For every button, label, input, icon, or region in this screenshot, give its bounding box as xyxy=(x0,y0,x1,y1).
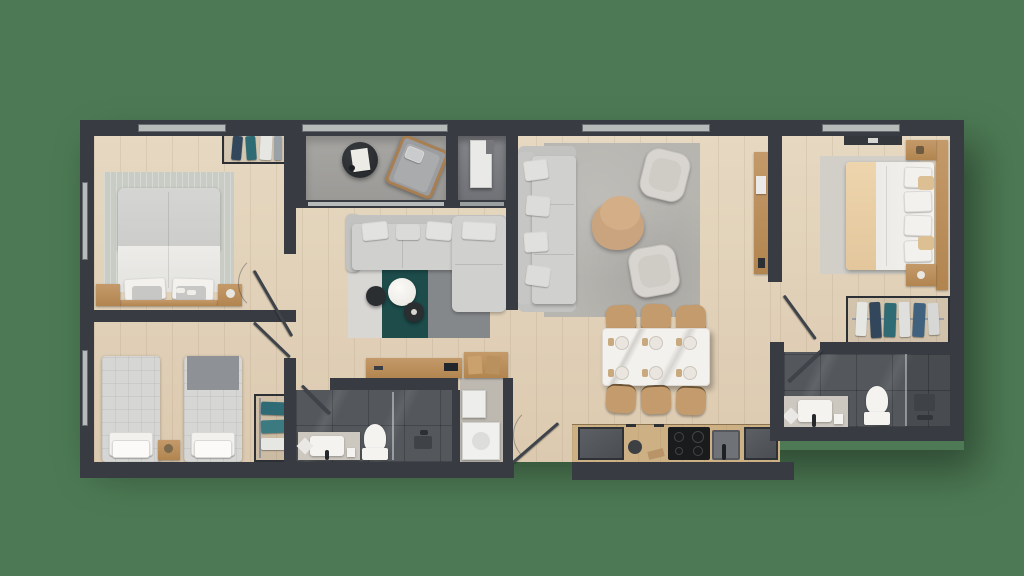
garment xyxy=(883,303,896,337)
wall-master-partition xyxy=(768,120,782,282)
sofa-pillow xyxy=(523,158,550,181)
accent-pillow xyxy=(918,176,934,190)
wall-right xyxy=(950,120,964,441)
wall-laundry-right xyxy=(503,378,513,462)
dryer xyxy=(462,422,500,460)
armchair-seat xyxy=(647,156,684,194)
bedroom-2-bed-left xyxy=(102,356,160,462)
dining-chair xyxy=(676,385,707,415)
washer xyxy=(462,390,486,418)
plate xyxy=(615,366,629,380)
armchair-bottom xyxy=(626,242,682,300)
balcony-sliding-glass xyxy=(308,202,444,206)
shower-fixture xyxy=(414,436,432,449)
garment xyxy=(898,302,910,337)
garment xyxy=(855,302,868,337)
cup xyxy=(676,338,682,346)
utility-glass xyxy=(460,202,504,206)
seam xyxy=(168,192,169,288)
burner xyxy=(693,446,703,456)
sofa-pillow xyxy=(525,264,552,287)
door-arc xyxy=(238,254,296,312)
throw-blanket xyxy=(187,356,239,390)
garment xyxy=(259,135,272,161)
master-media-unit xyxy=(844,136,902,145)
plant xyxy=(164,444,173,453)
fridge xyxy=(578,427,624,460)
window-master xyxy=(822,124,900,132)
shower-glass xyxy=(905,354,907,426)
bedroom-1-nightstand-left xyxy=(96,284,120,306)
wall-bottom-left xyxy=(80,462,514,478)
window-left-bedroom-2 xyxy=(82,350,88,426)
chaise-pillow xyxy=(462,221,497,241)
burner xyxy=(674,432,684,442)
organic-coffee-table-top xyxy=(600,196,640,230)
plate xyxy=(649,336,663,350)
slippers xyxy=(187,290,196,295)
master-toilet-bowl xyxy=(866,386,888,414)
soap-tray xyxy=(834,414,843,424)
garment xyxy=(245,136,257,161)
paper-bag xyxy=(485,355,501,374)
wall-master-suite-left xyxy=(770,342,784,441)
paper-bag xyxy=(467,356,482,375)
pillow xyxy=(112,440,150,458)
master-toilet-tank xyxy=(864,412,890,425)
decor xyxy=(916,146,924,154)
floor-plan-canvas xyxy=(0,0,1024,576)
wall-master-bath-top xyxy=(820,342,950,354)
remote xyxy=(374,366,383,370)
console-decor xyxy=(758,258,765,268)
decor xyxy=(917,271,925,279)
seam xyxy=(534,254,574,255)
shower-head xyxy=(420,430,428,435)
bathroom-1-faucet xyxy=(325,450,329,460)
pillow xyxy=(904,191,933,213)
cooktop xyxy=(668,427,710,460)
slippers xyxy=(176,288,185,293)
wall-bottom-kitchen xyxy=(572,462,794,480)
cabinet-handle xyxy=(654,424,664,427)
garment xyxy=(231,136,243,161)
wall-utility-left xyxy=(446,120,458,206)
cabinet-handle xyxy=(626,424,636,427)
plate xyxy=(615,336,629,350)
ac-unit-step xyxy=(486,140,494,154)
shower-fixture xyxy=(914,394,935,411)
tan-blanket xyxy=(846,162,876,270)
armchair-seat xyxy=(636,252,672,289)
plate xyxy=(683,336,697,350)
cup xyxy=(349,165,355,171)
master-faucet xyxy=(812,414,816,427)
cup xyxy=(608,369,614,377)
waste-bin xyxy=(628,440,642,454)
shower-handles xyxy=(917,415,933,420)
garment xyxy=(869,302,882,339)
side-table-dark xyxy=(404,302,424,322)
pillow xyxy=(904,215,933,237)
accent-pillow xyxy=(132,286,162,301)
window-lounge xyxy=(582,124,710,132)
window-left-bedroom-1 xyxy=(82,182,88,260)
window-bedroom-1 xyxy=(138,124,226,132)
dining-table xyxy=(602,328,710,386)
headboard xyxy=(120,300,218,306)
seam xyxy=(455,264,503,265)
burner xyxy=(692,431,704,443)
side-table-dark xyxy=(366,286,386,306)
window-balcony xyxy=(302,124,448,132)
duvet xyxy=(118,188,220,250)
seam xyxy=(886,166,887,266)
cup xyxy=(676,369,682,377)
device xyxy=(868,138,878,143)
garment xyxy=(274,136,282,160)
dining-chair xyxy=(605,383,636,414)
cup xyxy=(608,338,614,346)
wall-core-vertical xyxy=(506,120,518,310)
plate xyxy=(683,366,697,380)
dryer-door xyxy=(472,432,490,450)
soap-tray xyxy=(347,448,355,457)
sofa-pillow xyxy=(525,195,551,217)
wall-bathroom-laundry xyxy=(452,390,460,462)
burner xyxy=(675,447,683,455)
accent-pillow xyxy=(918,236,934,250)
sofa-pillow xyxy=(523,231,548,253)
kitchen-faucet xyxy=(722,444,726,460)
wall-bedrooms-right-lower xyxy=(284,358,296,462)
tv-console xyxy=(366,358,462,378)
wall-bottom-right xyxy=(770,427,964,441)
kitchen-sink xyxy=(712,430,740,460)
dining-chair xyxy=(641,384,672,414)
pillow xyxy=(194,440,232,458)
media-device xyxy=(444,363,458,371)
wall-console xyxy=(754,152,769,274)
toilet-tank xyxy=(362,448,388,460)
sofa-pillow xyxy=(361,221,389,242)
plate xyxy=(649,366,663,380)
sofa-pillow xyxy=(396,224,420,240)
wall-bathroom-1-top xyxy=(330,378,458,390)
laundry-shelf xyxy=(464,352,508,378)
console-device xyxy=(756,176,766,194)
sofa-pillow xyxy=(425,221,452,241)
garment xyxy=(912,303,926,338)
cup xyxy=(642,369,648,377)
bedroom-1-bed xyxy=(118,188,220,306)
plant xyxy=(226,289,235,298)
cup xyxy=(642,338,648,346)
wall-bedrooms-right-upper xyxy=(284,136,296,254)
shower-glass xyxy=(392,392,394,460)
garment xyxy=(927,303,940,336)
closet-frame xyxy=(846,296,950,344)
master-headboard xyxy=(936,140,948,290)
master-nightstand-top xyxy=(906,140,936,160)
master-nightstand-bottom xyxy=(906,264,936,286)
decor-dot xyxy=(411,309,417,315)
bedroom-2-bed-right xyxy=(184,356,242,462)
